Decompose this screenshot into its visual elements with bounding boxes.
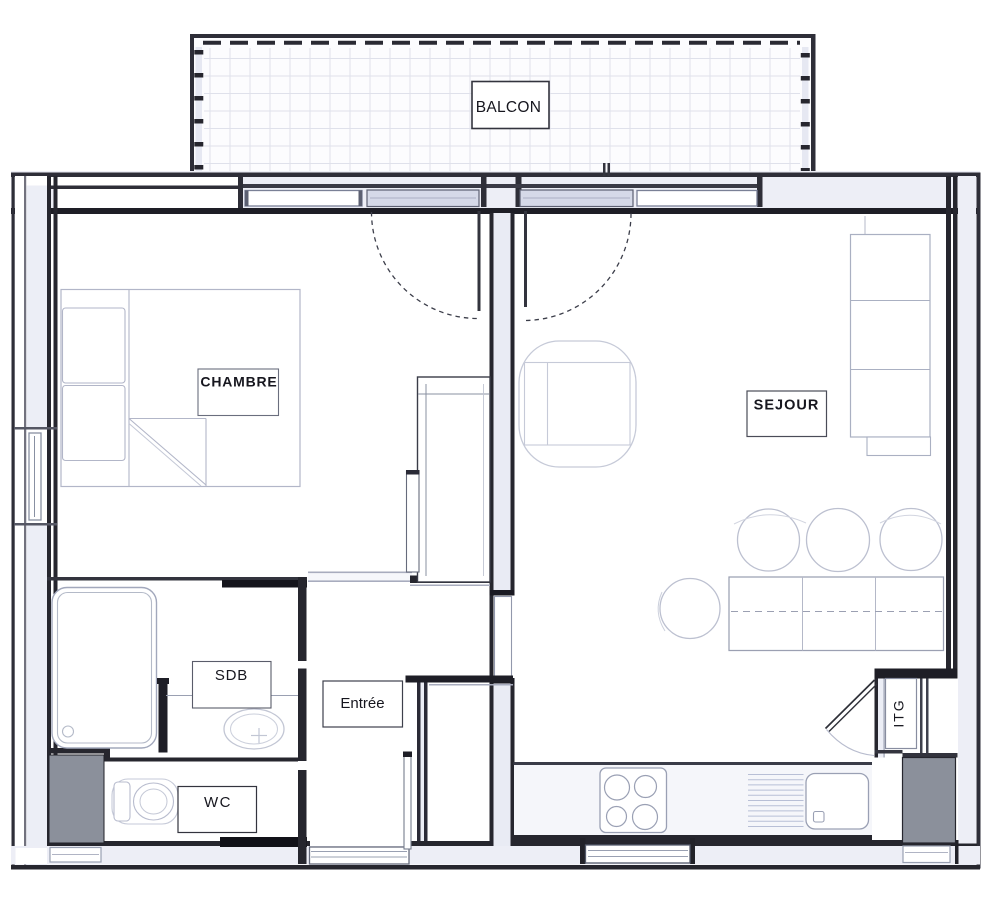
svg-text:SEJOUR: SEJOUR [754, 398, 820, 414]
svg-text:BALCON: BALCON [476, 99, 542, 116]
svg-text:SDB: SDB [215, 667, 248, 684]
svg-text:ITG: ITG [891, 698, 907, 727]
svg-text:CHAMBRE: CHAMBRE [200, 374, 277, 390]
svg-text:WC: WC [204, 794, 232, 811]
svg-text:Entrée: Entrée [340, 695, 384, 712]
